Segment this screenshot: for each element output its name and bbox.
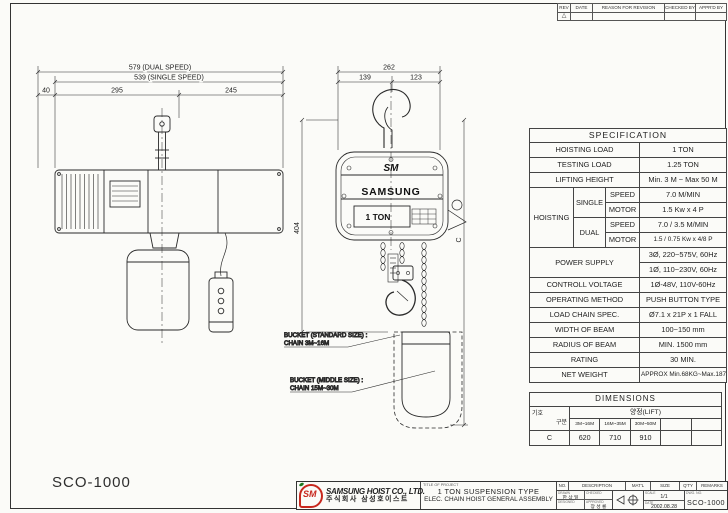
chain-guide: [150, 233, 179, 248]
spec-value-dual-motor: 1.5 / 0.75 Kw x 4/8 P: [640, 233, 727, 248]
rev-header-rev: REV: [558, 4, 571, 13]
note-bucket-middle-line1: BUCKET (MIDDLE SIZE) :: [290, 377, 363, 384]
rev-header-reason: REASON FOR REVISION: [593, 4, 665, 13]
bottom-hook: [386, 266, 415, 315]
drawing-sheet: 579 (DUAL SPEED) 539 (SINGLE SPEED) 40 2…: [0, 0, 728, 513]
dims-lift-header: 양정(LIFT): [570, 407, 722, 419]
rev-reason-cell: [593, 12, 665, 21]
spec-label-power-supply: POWER SUPPLY: [530, 248, 640, 278]
note-bucket-standard-line2: CHAIN 3M~16M: [284, 340, 329, 347]
dims-range-5: [691, 419, 721, 431]
dims-value-2: 710: [600, 431, 630, 446]
company-name-kr: 주식회사 삼성호이스트: [326, 496, 425, 503]
model-number-label: SCO-1000: [52, 474, 131, 491]
dim-label-139: 139: [359, 75, 371, 82]
date-cell: DATE 2002.08.28: [644, 501, 684, 510]
motor-nameplate: [110, 181, 140, 207]
brand-samsung-text: SAMSUNG: [361, 186, 420, 198]
dims-symbol-c: C: [530, 431, 570, 446]
parts-header-matl: MAT'L: [626, 482, 651, 490]
title-block-right: NO. DESCRIPTION MAT'L SIZE Q'TY REMARKS …: [557, 482, 727, 509]
project-title-line1: 1 TON SUSPENSION TYPE: [421, 487, 556, 496]
pendant-control: [209, 233, 233, 332]
dims-range-4: [661, 419, 691, 431]
spec-value-beam-width: 100~150 mm: [640, 323, 727, 338]
dims-value-5: [691, 431, 721, 446]
note-bucket-standard-line1: BUCKET (STANDARD SIZE) :: [284, 332, 368, 339]
dims-value-4: [661, 431, 691, 446]
drawn-cell: DRAWN 한 상 일: [557, 491, 585, 500]
dim-label-single-speed: 539 (SINGLE SPEED): [134, 75, 204, 82]
spec-value-operating-method: PUSH BUTTON TYPE: [640, 293, 727, 308]
dim-label-dual-speed: 579 (DUAL SPEED): [129, 65, 191, 72]
spec-label-single-speed: SPEED: [606, 188, 640, 203]
dims-value-1: 620: [570, 431, 600, 446]
spec-value-hoisting-load: 1 TON: [640, 143, 727, 158]
spec-label-dual-motor: MOTOR: [606, 233, 640, 248]
designed-label: DESIGNED: [558, 500, 575, 504]
date-value: 2002.08.28: [644, 504, 684, 510]
dim-label-295: 295: [111, 88, 123, 95]
parts-header-description: DESCRIPTION: [569, 482, 626, 490]
projection-cell: [613, 491, 644, 509]
limit-lever-pivot: [452, 200, 462, 210]
spec-value-net-weight: APPROX Min.68KG~Max.187KG: [640, 368, 727, 383]
spec-value-single-speed: 7.0 M/MIN: [640, 188, 727, 203]
spec-label-single-motor: MOTOR: [606, 203, 640, 218]
rev-header-apprd: APPR'D BY: [696, 4, 727, 13]
dwg-no-label: DWG. NO.: [686, 491, 702, 495]
scale-cell: SCALE 1/1: [644, 491, 684, 501]
spec-label-single: SINGLE: [574, 188, 606, 218]
spec-label-dual-speed: SPEED: [606, 218, 640, 233]
spec-label-load-chain: LOAD CHAIN SPEC.: [530, 308, 640, 323]
company-cell: SM SAMSUNG HOIST CO., LTD. 주식회사 삼성호이스트: [297, 482, 421, 509]
spec-label-rating: RATING: [530, 353, 640, 368]
dims-range-3: 30M~50M: [630, 419, 660, 431]
specification-table: SPECIFICATION HOISTING LOAD 1 TON TESTIN…: [529, 128, 727, 383]
dims-value-3: 910: [630, 431, 660, 446]
spec-value-power-1ph: 1Ø, 110~230V, 60Hz: [640, 263, 727, 278]
spec-value-dual-speed: 7.0 / 3.5 M/MIN: [640, 218, 727, 233]
chain-bucket-side: [127, 250, 189, 330]
spec-label-control-voltage: CONTROLL VOLTAGE: [530, 278, 640, 293]
brand-sm-text: SM: [384, 163, 400, 174]
hoist-body-side: [55, 170, 283, 248]
revision-table: REV DATE REASON FOR REVISION CHECKED BY …: [557, 3, 727, 21]
rev-header-date: DATE: [571, 4, 593, 13]
checked-label: CHECKED: [586, 491, 602, 495]
spec-value-load-chain: Ø7.1 x 21P x 1 FALL: [640, 308, 727, 323]
rev-mark-cell: △: [558, 12, 571, 21]
front-view: 262 139 123 404 C: [284, 65, 468, 429]
spec-value-rating: 30 MIN.: [640, 353, 727, 368]
dims-corner-top: 구분: [556, 420, 567, 426]
note-bucket-middle-line2: CHAIN 15M~30M: [290, 385, 339, 392]
logo-leaf-icon: [299, 481, 305, 486]
spec-value-testing-load: 1.25 TON: [640, 158, 727, 173]
dim-label-123: 123: [410, 75, 422, 82]
project-title-cell: TITLE OF PROJECT 1 TON SUSPENSION TYPE E…: [421, 482, 557, 509]
parts-header-remarks: REMARKS: [697, 482, 727, 490]
logo-text: SM: [303, 489, 317, 499]
staff-cells: DRAWN 한 상 일 CHECKED DESIGNED APPROVED 장 …: [557, 491, 613, 509]
spec-value-lifting-height: Min. 3 M ~ Max 50 M: [640, 173, 727, 188]
rev-header-checked: CHECKED BY: [665, 4, 696, 13]
chain-bucket-standard: [402, 332, 450, 417]
dims-range-2: 16M~35M: [600, 419, 630, 431]
dimensions-table: DIMENSIONS 구분 기호 양정(LIFT) 3M~16M 16M~35M…: [529, 392, 722, 446]
parts-header-size: SIZE: [651, 482, 680, 490]
scale-value: 1/1: [644, 494, 684, 500]
spec-value-power-3ph: 3Ø, 220~575V, 60Hz: [640, 248, 727, 263]
side-view: 579 (DUAL SPEED) 539 (SINGLE SPEED) 40 2…: [36, 65, 285, 346]
dims-range-1: 3M~16M: [570, 419, 600, 431]
parts-header-no: NO.: [557, 482, 569, 490]
spec-label-dual: DUAL: [574, 218, 606, 248]
approved-name: 장 성 룡: [585, 503, 612, 509]
title-block: SM SAMSUNG HOIST CO., LTD. 주식회사 삼성호이스트 T…: [296, 481, 728, 510]
spec-value-control-voltage: 1Ø-48V, 110V-60Hz: [640, 278, 727, 293]
dim-label-245: 245: [225, 88, 237, 95]
parts-list-header: NO. DESCRIPTION MAT'L SIZE Q'TY REMARKS: [557, 482, 727, 491]
parts-header-qty: Q'TY: [680, 482, 697, 490]
dim-label-404: 404: [294, 222, 301, 234]
designed-cell: DESIGNED: [557, 500, 585, 509]
spec-label-operating-method: OPERATING METHOD: [530, 293, 640, 308]
company-name-en: SAMSUNG HOIST CO., LTD.: [326, 488, 425, 496]
dim-label-40: 40: [42, 88, 50, 95]
rev-apprd-cell: [696, 12, 727, 21]
spec-label-beam-width: WIDTH OF BEAM: [530, 323, 640, 338]
dwg-no-cell: DWG. NO. SCO-1000: [685, 491, 727, 509]
spec-label-testing-load: TESTING LOAD: [530, 158, 640, 173]
rev-date-cell: [571, 12, 593, 21]
top-hook: [373, 89, 410, 148]
dims-corner-bottom: 기호: [532, 411, 543, 417]
third-angle-projection-icon: [615, 493, 641, 507]
dims-corner-cell: 구분 기호: [530, 407, 570, 431]
scale-date-cells: SCALE 1/1 DATE 2002.08.28: [644, 491, 685, 509]
spec-label-hoisting-load: HOISTING LOAD: [530, 143, 640, 158]
rev-checked-cell: [665, 12, 696, 21]
samsung-hoist-logo-icon: SM: [299, 484, 323, 508]
spec-label-net-weight: NET WEIGHT: [530, 368, 640, 383]
load-chain: [381, 243, 426, 327]
dim-label-262: 262: [383, 65, 395, 72]
spec-value-single-motor: 1.5 Kw x 4 P: [640, 203, 727, 218]
approved-cell: APPROVED 장 성 룡: [585, 500, 613, 509]
chain-bucket-middle-outline: [394, 332, 462, 428]
spec-title: SPECIFICATION: [530, 129, 727, 143]
dims-title: DIMENSIONS: [530, 393, 722, 407]
dwg-no-value: SCO-1000: [685, 498, 727, 507]
dim-label-c: C: [456, 237, 463, 242]
checked-cell: CHECKED: [585, 491, 613, 500]
project-title-line2: ELEC. CHAIN HOIST GENERAL ASSEMBLY: [421, 496, 556, 503]
spec-value-beam-radius: MIN. 1500 mm: [640, 338, 727, 353]
spec-label-hoisting: HOISTING: [530, 188, 574, 248]
spec-label-lifting-height: LIFTING HEIGHT: [530, 173, 640, 188]
capacity-text: 1 TON: [366, 212, 391, 222]
project-title-label: TITLE OF PROJECT: [423, 483, 458, 487]
spec-label-beam-radius: RADIUS OF BEAM: [530, 338, 640, 353]
